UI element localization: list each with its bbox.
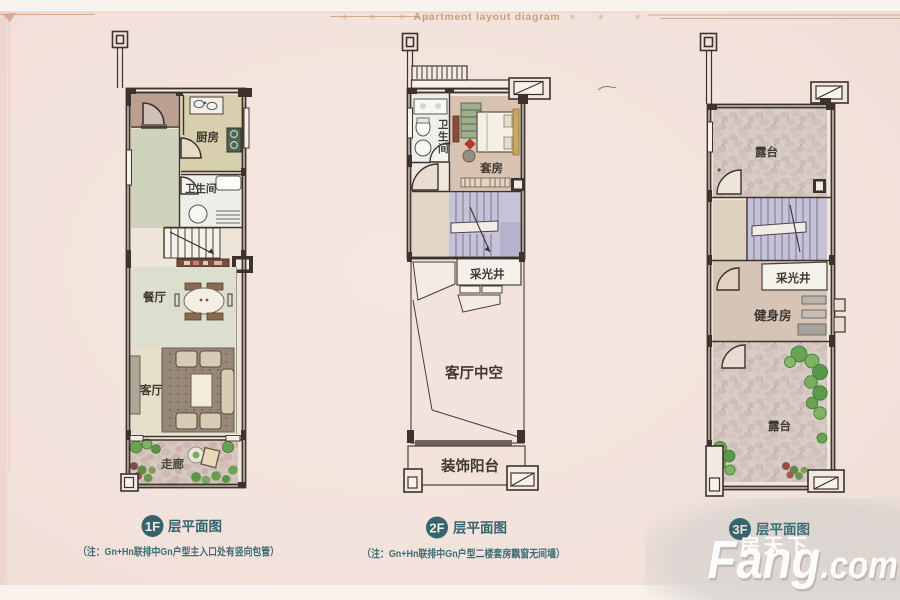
svg-text:1F: 1F xyxy=(145,519,160,534)
svg-text:2F: 2F xyxy=(429,521,444,536)
svg-text:采光井: 采光井 xyxy=(469,267,505,281)
svg-text:层平面图: 层平面图 xyxy=(168,519,222,534)
svg-text:厨房: 厨房 xyxy=(196,130,219,144)
svg-text:露台: 露台 xyxy=(768,419,791,433)
svg-text:✳: ✳ xyxy=(398,12,406,22)
svg-text:✳: ✳ xyxy=(341,12,349,22)
svg-text:（注：Gn+Hn联排中Gn户型主入口处有竖向包管）: （注：Gn+Hn联排中Gn户型主入口处有竖向包管） xyxy=(78,545,279,558)
svg-text:✳: ✳ xyxy=(634,12,642,22)
svg-text:套房: 套房 xyxy=(480,161,503,175)
svg-text:装饰阳台: 装饰阳台 xyxy=(440,457,499,475)
svg-text:✳: ✳ xyxy=(569,12,577,22)
svg-text:卫生间: 卫生间 xyxy=(185,182,217,195)
svg-text:卫: 卫 xyxy=(438,119,449,131)
svg-text:餐厅: 餐厅 xyxy=(142,290,166,304)
svg-text:走廊: 走廊 xyxy=(160,457,184,471)
svg-text:健身房: 健身房 xyxy=(754,308,792,323)
svg-text:间: 间 xyxy=(438,142,449,155)
svg-text:✳: ✳ xyxy=(369,12,377,22)
svg-text:✳: ✳ xyxy=(597,12,605,22)
svg-text:采光井: 采光井 xyxy=(775,271,811,285)
svg-text:露台: 露台 xyxy=(755,145,778,159)
svg-text:Apartment layout diagram: Apartment layout diagram xyxy=(414,11,561,23)
svg-text:房天下: 房天下 xyxy=(740,534,811,558)
svg-text:生: 生 xyxy=(438,130,449,143)
svg-text:（注：Gn+Hn联排中Gn户型二楼套房飘窗无间墙）: （注：Gn+Hn联排中Gn户型二楼套房飘窗无间墙） xyxy=(362,547,565,560)
svg-text:层平面图: 层平面图 xyxy=(453,521,507,536)
svg-text:客厅: 客厅 xyxy=(139,383,163,397)
svg-text:客厅中空: 客厅中空 xyxy=(444,364,503,382)
